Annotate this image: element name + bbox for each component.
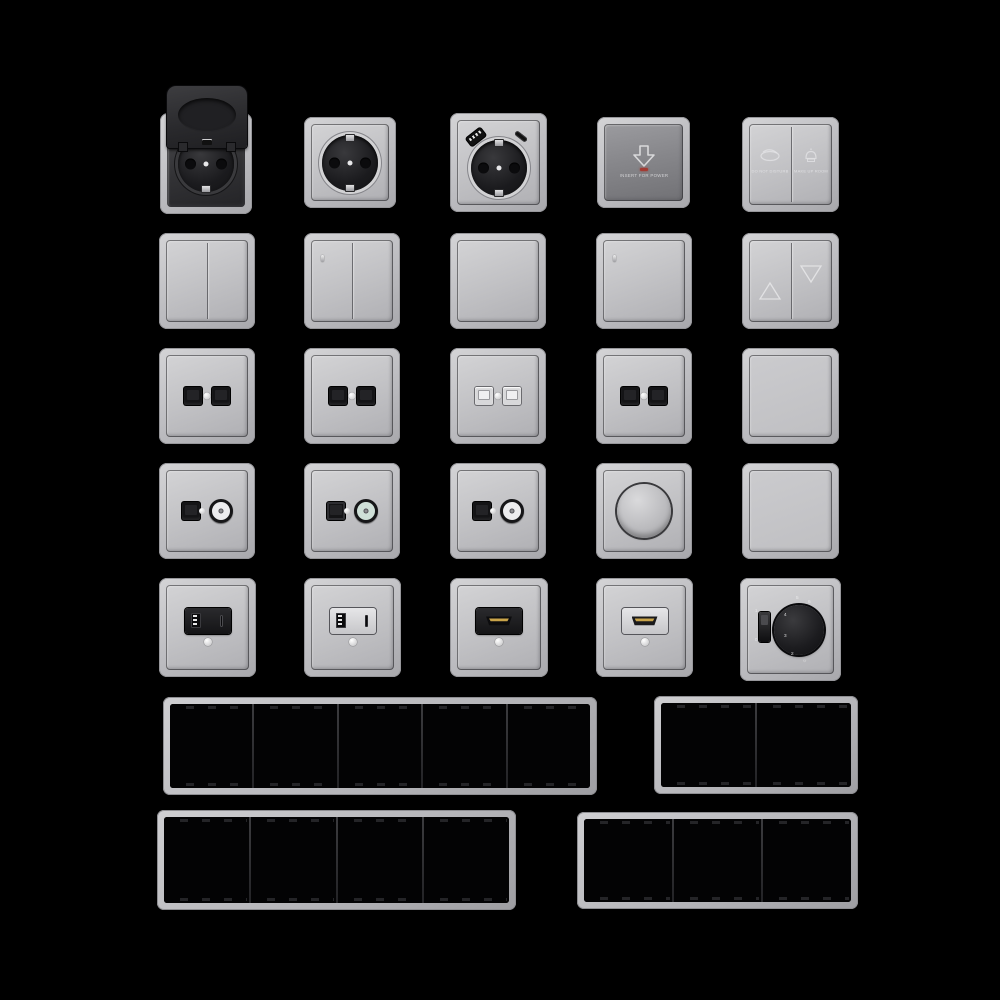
coax-connector-icon: [500, 499, 524, 523]
outlet-plate: [457, 355, 539, 437]
rj45-port-icon: [473, 502, 491, 520]
socket-plate: [311, 124, 389, 201]
rj45-port-icon: [212, 387, 230, 405]
dial-number: 6: [808, 598, 811, 604]
socket-pin-hole: [185, 158, 196, 169]
status-led: [640, 168, 648, 171]
frame-window: [661, 703, 755, 787]
rj45-coax-outlet: [450, 463, 546, 559]
schuko-face-icon: [322, 135, 378, 191]
thermostat-plate: 1 0 2 3 4 5 6 ☼: [747, 585, 834, 674]
mounting-frame-2-gang: [654, 696, 858, 794]
dial-number: 5: [796, 595, 799, 601]
earth-clip-icon: [494, 189, 504, 197]
frame-cavity: [170, 704, 590, 788]
rj45-port-icon: [649, 387, 667, 405]
outlet-plate: [311, 585, 394, 670]
rj45-port-icon: [621, 387, 639, 405]
frame-window: [763, 819, 851, 902]
earth-clip-icon: [345, 184, 355, 192]
center-dot: [204, 393, 211, 400]
lid-latch: [202, 139, 212, 145]
dual-rj45-outlet: [596, 348, 692, 444]
frame-window: [674, 819, 762, 902]
shutter-down-rocker: [791, 240, 833, 322]
outlet-plate: [311, 470, 393, 552]
make-up-room-rocker: make up room: [791, 124, 833, 205]
service-bell-icon: [803, 147, 819, 162]
schuko-socket-usb: [450, 113, 547, 212]
mounting-frame-4-gang: [157, 810, 516, 910]
usb-a-port-icon: [336, 613, 346, 628]
usb-c-port-icon: [514, 130, 528, 143]
data-port-icon: [503, 387, 521, 405]
center-dot: [495, 393, 502, 400]
hotel-service-switch: do not disturb make up room: [742, 117, 839, 212]
rocker-plate: [457, 240, 539, 322]
outlet-plate: [603, 355, 685, 437]
frame-window: [170, 704, 252, 788]
frame-window: [757, 703, 851, 787]
usb-c-port-icon: [220, 615, 223, 627]
center-dot: [349, 638, 357, 646]
hdmi-outlet-light: [596, 578, 693, 677]
socket-pin-hole: [216, 158, 227, 169]
frame-window: [254, 704, 336, 788]
outlet-plate: [311, 355, 393, 437]
outlet-plate: [166, 470, 248, 552]
socket-pin-hole: [360, 157, 371, 168]
blank-plate-face: [749, 470, 832, 552]
do-not-disturb-rocker: do not disturb: [749, 124, 791, 205]
usb-charger-outlet-light: [304, 578, 401, 677]
blank-cover-plate: [742, 463, 839, 559]
rj45-port-icon: [357, 387, 375, 405]
rocker-plate: [311, 240, 393, 322]
frame-cavity: [661, 703, 851, 787]
socket-pin-hole: [329, 157, 340, 168]
indicator-led: [613, 255, 616, 262]
frame-window: [508, 704, 590, 788]
frame-window: [251, 817, 336, 903]
single-rocker-switch-indicator: [596, 233, 692, 329]
frame-window: [424, 817, 509, 903]
rocker-divider: [352, 243, 353, 319]
frame-window: [164, 817, 249, 903]
rj45-port-icon: [182, 502, 200, 520]
double-rocker-switch-indicator: [304, 233, 400, 329]
center-dot: [490, 508, 496, 514]
up-triangle-icon: [758, 281, 782, 301]
center-dot: [349, 393, 356, 400]
schuko-socket-flip-lid: [160, 86, 252, 214]
dual-rj45-outlet: [304, 348, 400, 444]
frame-window: [584, 819, 672, 902]
dimmer-plate: [603, 470, 685, 552]
center-dot: [199, 508, 205, 514]
sun-icon: ☼: [802, 658, 807, 664]
shutter-up-rocker: [749, 240, 791, 322]
rj45-port-icon: [184, 387, 202, 405]
socket-pin-hole: [478, 162, 489, 173]
usb-module: [185, 608, 231, 634]
lid-inner-recess: [178, 98, 236, 132]
slider-mark: 0: [755, 637, 758, 642]
earth-clip-icon: [494, 139, 504, 147]
do-not-disturb-icon: [759, 148, 781, 162]
coax-connector-icon: [354, 499, 378, 523]
outlet-plate: [166, 585, 249, 670]
schuko-face-icon: [471, 140, 527, 196]
earth-clip-icon: [201, 185, 211, 193]
socket-plate: [457, 120, 540, 205]
card-switch-plate: INSERT FOR POWER: [604, 124, 683, 201]
center-dot: [641, 393, 648, 400]
data-coax-outlet: [304, 463, 400, 559]
frame-window: [423, 704, 505, 788]
outlet-plate: [603, 585, 686, 670]
frame-cavity: [584, 819, 851, 902]
coax-connector-icon: [209, 499, 233, 523]
thermostat-on-off-slider: [759, 612, 770, 642]
hdmi-module: [476, 608, 522, 634]
mounting-frame-5-gang: [163, 697, 597, 795]
rj45-port-icon: [329, 387, 347, 405]
key-card-switch: INSERT FOR POWER: [597, 117, 690, 208]
schuko-socket: [304, 117, 396, 208]
hinged-lid: [167, 86, 247, 148]
rocker-divider: [207, 243, 208, 319]
slider-mark: 1: [755, 608, 758, 613]
outlet-plate: [457, 585, 541, 670]
center-dot: [204, 638, 212, 646]
hdmi-port-icon: [632, 616, 658, 625]
earth-clip-icon: [345, 134, 355, 142]
outlet-plate: [166, 355, 248, 437]
center-dot: [641, 638, 649, 646]
frame-cavity: [164, 817, 509, 903]
data-port-icon: [475, 387, 493, 405]
thermostat: 1 0 2 3 4 5 6 ☼: [740, 578, 841, 681]
down-triangle-icon: [799, 264, 823, 284]
socket-center-dot: [204, 161, 209, 166]
socket-center-dot: [348, 160, 353, 165]
hotel-switch-plate: do not disturb make up room: [749, 124, 832, 205]
data-port-icon: [327, 502, 345, 520]
frame-window: [339, 704, 421, 788]
card-switch-label: INSERT FOR POWER: [619, 173, 668, 178]
dual-data-outlet-shuttered: [450, 348, 546, 444]
frame-window: [338, 817, 423, 903]
dual-rj45-outlet: [159, 348, 255, 444]
rotary-dimmer: [596, 463, 692, 559]
double-rocker-switch: [159, 233, 255, 329]
shutter-plate: [749, 240, 832, 322]
socket-pin-hole: [509, 162, 520, 173]
single-rocker-switch: [450, 233, 546, 329]
shutter-switch: [742, 233, 839, 329]
outlet-plate: [457, 470, 539, 552]
lid-hinge: [227, 143, 235, 151]
center-dot: [495, 638, 503, 646]
rj45-coax-outlet: [159, 463, 255, 559]
usb-a-port-icon: [191, 613, 201, 628]
hdmi-outlet-black: [450, 578, 548, 677]
usb-module: [330, 608, 376, 634]
rocker-plate: [166, 240, 248, 322]
center-dot: [344, 508, 350, 514]
usb-charger-outlet-black: [159, 578, 256, 677]
usb-c-port-icon: [365, 615, 368, 627]
rocker-plate: [603, 240, 685, 322]
blank-rocker-plate: [742, 348, 839, 444]
hdmi-module: [622, 608, 668, 634]
dimmer-knob: [617, 484, 671, 538]
hdmi-port-icon: [486, 616, 512, 625]
lid-hinge: [179, 143, 187, 151]
dial-number: 2: [790, 651, 793, 657]
mounting-frame-3-gang: [577, 812, 858, 909]
do-not-disturb-label: do not disturb: [749, 169, 791, 174]
blank-plate-face: [749, 355, 832, 437]
socket-center-dot: [496, 165, 501, 170]
thermostat-knob: [774, 605, 824, 655]
make-up-room-label: make up room: [791, 169, 833, 174]
indicator-led: [321, 255, 324, 262]
card-insert-arrow-icon: [631, 144, 657, 168]
